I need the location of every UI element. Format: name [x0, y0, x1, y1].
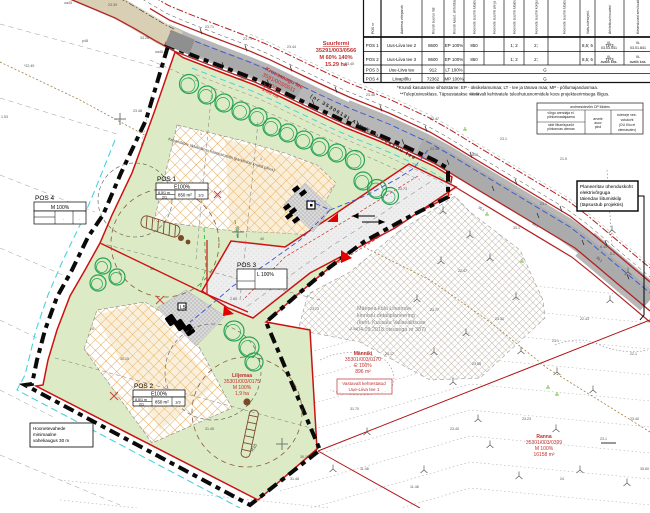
- svg-text:*Krundi kasutamise sihtotstarv: *Krundi kasutamise sihtotstarve: EP - ük…: [397, 85, 598, 90]
- svg-text:35.60: 35.60: [640, 467, 649, 471]
- svg-text:23.40: 23.40: [630, 417, 639, 421]
- svg-text:23.71: 23.71: [243, 37, 252, 41]
- svg-text:Krundi suurus m2: Krundi suurus m2: [432, 7, 436, 34]
- svg-text:2/1: 2/1: [162, 195, 167, 199]
- svg-text:POS 2: POS 2: [134, 383, 154, 390]
- svg-text:23.31: 23.31: [495, 317, 504, 321]
- svg-text:23.1: 23.1: [552, 339, 559, 343]
- svg-text:POS 1: POS 1: [366, 43, 379, 48]
- svg-text:minimaalne: minimaalne: [33, 432, 57, 437]
- svg-text:30.15: 30.15: [120, 357, 129, 361]
- svg-text:L5: L5: [180, 305, 186, 311]
- svg-text:MP 100%: MP 100%: [445, 77, 464, 82]
- svg-text:.: .: [79, 216, 80, 221]
- svg-text:Vastavalt kehtestatud: Vastavalt kehtestatud: [342, 381, 386, 386]
- svg-text:VL: VL: [607, 41, 611, 45]
- svg-text:23.40: 23.40: [450, 427, 459, 431]
- svg-text:8.2: 8.2: [610, 252, 615, 256]
- svg-text:31.45: 31.45: [205, 427, 214, 431]
- svg-text:Hoonete suurim lubatud ehitise: Hoonete suurim lubatud ehitisealune pind: [473, 0, 477, 34]
- svg-text:POS 4: POS 4: [35, 195, 55, 202]
- svg-text:(keht. Kuusalu Vallavalitsuse: (keht. Kuusalu Vallavalitsuse: [357, 320, 426, 326]
- svg-text:piirkonnas olemas: piirkonnas olemas: [547, 127, 575, 131]
- svg-text:p48: p48: [82, 39, 88, 43]
- svg-text:22.47: 22.47: [458, 269, 467, 273]
- svg-text:850 m²: 850 m²: [155, 400, 169, 405]
- svg-text:Hoonetevahede: Hoonetevahede: [33, 426, 66, 431]
- svg-text:23.23: 23.23: [522, 417, 531, 421]
- svg-text:votukoht: votukoht: [621, 118, 634, 122]
- svg-text:Hoonete suurim korgus m: Hoonete suurim korgus m: [535, 0, 539, 34]
- svg-text:8.40: 8.40: [600, 245, 607, 249]
- svg-text:23.48: 23.48: [133, 109, 142, 113]
- svg-text:11.48: 11.48: [360, 467, 369, 471]
- svg-text:andmesidevõrk DP liikides: andmesidevõrk DP liikides: [570, 105, 610, 109]
- svg-text:POS 2: POS 2: [366, 57, 379, 62]
- svg-text:Uus-Liiva tee 3: Uus-Liiva tee 3: [387, 57, 417, 62]
- svg-text:33.28: 33.28: [140, 36, 149, 40]
- svg-text:03.01.841: 03.01.841: [630, 46, 646, 50]
- svg-text:**Tulepüsivusklass. Täpsustata: **Tulepüsivusklass. Täpsustatakse vastav…: [400, 92, 609, 97]
- svg-text:(OU Kiiu el: (OU Kiiu el: [619, 123, 636, 127]
- svg-text:8,5/1 m: 8,5/1 m: [135, 398, 147, 402]
- svg-text:vahekaugus 30 m: vahekaugus 30 m: [33, 438, 69, 443]
- svg-text:11.48: 11.48: [410, 485, 419, 489]
- svg-text:1: 1: [200, 132, 202, 136]
- svg-text:40: 40: [260, 237, 264, 241]
- svg-text:olemasolev): olemasolev): [618, 128, 636, 132]
- svg-text:23.39: 23.39: [108, 3, 117, 7]
- svg-text:23.05: 23.05: [472, 362, 481, 366]
- svg-text:1: 1: [330, 187, 332, 191]
- svg-text:1848: 1848: [470, 153, 478, 157]
- svg-text:1.53: 1.53: [1, 115, 8, 119]
- svg-text:912: 912: [429, 68, 437, 73]
- svg-text:Uue-Liiva tee 1: Uue-Liiva tee 1: [349, 387, 380, 392]
- svg-text:(täpsustub projektis): (täpsustub projektis): [580, 202, 624, 208]
- svg-text:M 60% 140%: M 60% 140%: [319, 55, 352, 61]
- svg-text:1; 2: 1; 2: [510, 43, 518, 48]
- svg-text:2.85: 2.85: [230, 297, 237, 301]
- svg-text:Uus-Liiva tee 2: Uus-Liiva tee 2: [387, 43, 417, 48]
- svg-text:23.73: 23.73: [398, 187, 407, 191]
- svg-text:30.15: 30.15: [300, 455, 309, 459]
- svg-text:23.17: 23.17: [385, 352, 394, 356]
- svg-text:VL: VL: [636, 55, 640, 59]
- svg-text:31.70: 31.70: [350, 407, 359, 411]
- svg-text:E100%: E100%: [151, 392, 168, 398]
- svg-text:8,5; 6: 8,5; 6: [582, 57, 594, 62]
- svg-text:22.1: 22.1: [630, 352, 637, 356]
- svg-text:23.73: 23.73: [310, 307, 319, 311]
- svg-text:avalik kas.: avalik kas.: [630, 60, 647, 64]
- svg-text:23.1: 23.1: [600, 437, 607, 441]
- svg-text:Liivapõllu: Liivapõllu: [392, 77, 411, 82]
- svg-text:Mäepea küla Liivamäe: Mäepea küla Liivamäe: [357, 306, 411, 312]
- svg-text:45: 45: [150, 267, 154, 271]
- svg-text:Suurfermi: Suurfermi: [323, 41, 350, 47]
- svg-text:Krundi kasut. sihtotstarve: Krundi kasut. sihtotstarve: [453, 0, 457, 34]
- svg-text:.: .: [63, 216, 64, 221]
- svg-text:LT 100%: LT 100%: [445, 68, 462, 73]
- svg-text:POS 3: POS 3: [237, 262, 257, 269]
- svg-text:03.03.041: 03.03.041: [601, 46, 617, 50]
- svg-text:Hoonete suurim arv ja korrusel: Hoonete suurim arv ja korruselisus: [493, 0, 497, 34]
- svg-text:oa48: oa48: [238, 77, 246, 81]
- svg-text:23.77: 23.77: [430, 308, 439, 312]
- svg-text:VL: VL: [636, 41, 640, 45]
- svg-text:2;: 2;: [534, 43, 538, 48]
- svg-text:kinnistu detailplaneering: kinnistu detailplaneering: [357, 313, 415, 319]
- svg-text:Arhitektuurinouded: Arhitektuurinouded: [608, 5, 612, 34]
- svg-text:850: 850: [470, 43, 478, 48]
- svg-text:15.29 ha: 15.29 ha: [325, 62, 348, 68]
- svg-text:23.48: 23.48: [366, 93, 375, 97]
- svg-text:23.48: 23.48: [430, 147, 439, 151]
- svg-text:VL: VL: [607, 55, 611, 59]
- svg-text:*22.45: *22.45: [24, 64, 34, 68]
- svg-text:1,9 ha: 1,9 ha: [235, 391, 249, 397]
- svg-text:Hoonete suurim lubatud arv kru: Hoonete suurim lubatud arv krundil: [513, 0, 517, 34]
- svg-text:POS nr: POS nr: [371, 22, 375, 34]
- svg-text:Uue-Liiva tee: Uue-Liiva tee: [389, 68, 415, 73]
- svg-text:G: G: [543, 68, 547, 73]
- svg-text:EP 100%: EP 100%: [445, 57, 463, 62]
- svg-text:23.71: 23.71: [205, 25, 214, 29]
- svg-text:850: 850: [470, 57, 478, 62]
- svg-text:23.1: 23.1: [540, 202, 547, 206]
- svg-text:31.48: 31.48: [290, 477, 299, 481]
- svg-text:23.1: 23.1: [500, 137, 507, 141]
- svg-text:72362: 72362: [427, 77, 440, 82]
- svg-text:G: G: [543, 77, 547, 82]
- svg-text:21.5: 21.5: [560, 157, 567, 161]
- svg-text:35291/003/0566: 35291/003/0566: [316, 48, 356, 54]
- svg-text:POS 4: POS 4: [366, 77, 379, 82]
- svg-text:täiendav liitumiskilp: täiendav liitumiskilp: [580, 196, 622, 202]
- svg-text:24: 24: [560, 477, 564, 481]
- svg-text:16158 m²: 16158 m²: [533, 452, 554, 458]
- svg-text:Kitsendused servituudid: Kitsendused servituudid: [636, 0, 640, 34]
- svg-text:04.09.2018 otsusega nr 387): 04.09.2018 otsusega nr 387): [357, 327, 426, 333]
- svg-text:896 m²: 896 m²: [355, 369, 371, 375]
- svg-text:1/3: 1/3: [175, 400, 181, 405]
- svg-text:23.47: 23.47: [430, 117, 439, 121]
- svg-text:8600: 8600: [428, 57, 438, 62]
- svg-text:M 100%: M 100%: [51, 205, 70, 211]
- svg-text:EP 100%: EP 100%: [445, 43, 463, 48]
- svg-text:20: 20: [90, 327, 94, 331]
- svg-text:2/1: 2/1: [139, 402, 144, 406]
- svg-text:oa46: oa46: [155, 50, 163, 54]
- svg-text:piirkonnaalajaama: piirkonnaalajaama: [547, 115, 575, 119]
- svg-text:tuletorje vee-: tuletorje vee-: [617, 113, 637, 117]
- svg-text:8,5/1 m: 8,5/1 m: [158, 191, 170, 195]
- svg-text:L 100%: L 100%: [257, 272, 274, 278]
- svg-text:1; 2: 1; 2: [510, 57, 518, 62]
- svg-text:avalik kas.: avalik kas.: [601, 60, 618, 64]
- svg-text:1: 1: [260, 157, 262, 161]
- svg-text:23.44: 23.44: [287, 45, 296, 49]
- svg-text:2.34: 2.34: [350, 327, 357, 331]
- svg-text:oa45: oa45: [64, 1, 72, 5]
- svg-text:1/3: 1/3: [198, 193, 204, 198]
- svg-text:POS 3: POS 3: [366, 68, 379, 73]
- svg-text:8600: 8600: [428, 43, 438, 48]
- svg-text:pind: pind: [595, 125, 602, 129]
- svg-text:33.1: 33.1: [513, 226, 520, 230]
- svg-text:8,5; 6: 8,5; 6: [582, 43, 594, 48]
- svg-text:elektrivõrguga: elektrivõrguga: [580, 190, 610, 196]
- svg-text:2;: 2;: [534, 57, 538, 62]
- svg-text:22.43: 22.43: [580, 317, 589, 321]
- svg-text:Hoonete suurim lubatud korgus: Hoonete suurim lubatud korgus maapinnast: [563, 0, 567, 34]
- svg-text:POS 1: POS 1: [157, 176, 177, 183]
- svg-text:Valis-tuletorjekl.: Valis-tuletorjekl.: [586, 10, 590, 34]
- svg-text:E100%: E100%: [174, 185, 191, 191]
- svg-text:Aadressi ettepanek: Aadressi ettepanek: [400, 5, 404, 34]
- svg-text:Planeeritav ühenduskoht: Planeeritav ühenduskoht: [580, 184, 633, 190]
- svg-text:850 m²: 850 m²: [178, 193, 192, 198]
